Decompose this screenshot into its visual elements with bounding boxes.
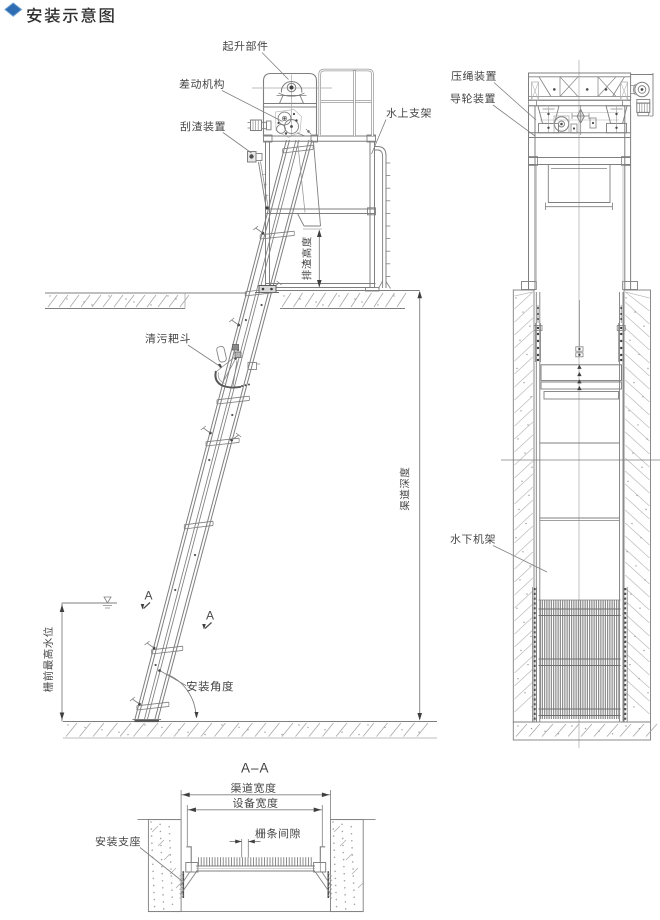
svg-text:A–A: A–A <box>241 761 270 776</box>
svg-text:A: A <box>206 609 215 623</box>
svg-text:A: A <box>145 589 154 603</box>
